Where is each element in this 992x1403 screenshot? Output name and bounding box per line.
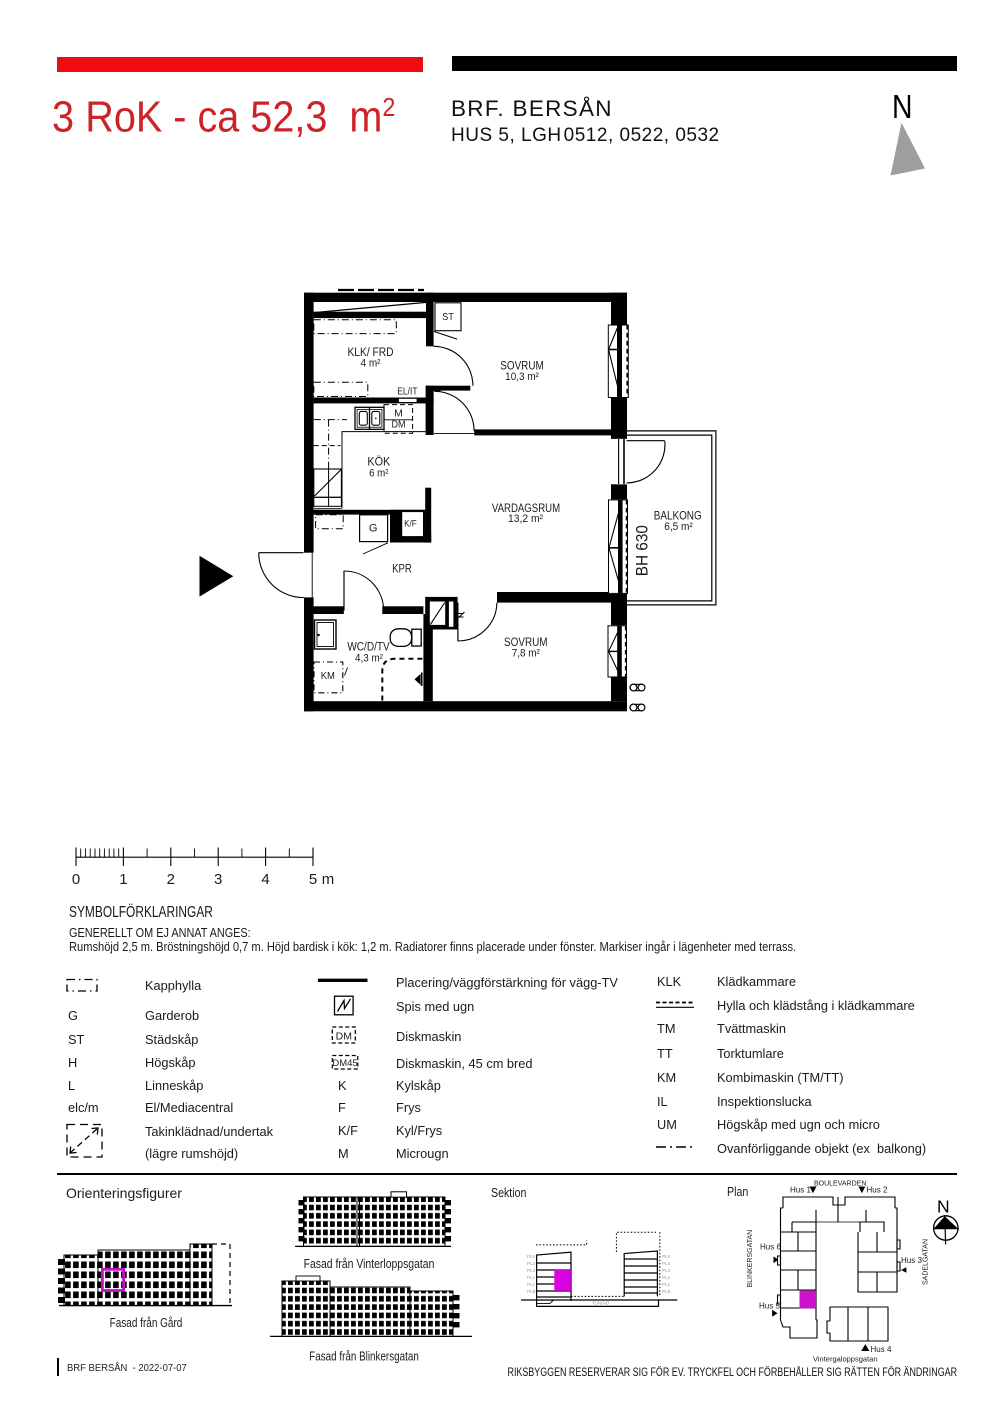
svg-text:4 m²: 4 m² xyxy=(360,357,380,370)
svg-text:DM: DM xyxy=(336,1031,352,1043)
svg-text:PL2: PL2 xyxy=(527,1275,536,1280)
svg-text:Hus 6: Hus 6 xyxy=(760,1243,781,1252)
svg-text:BLINKERSGATAN: BLINKERSGATAN xyxy=(747,1230,754,1288)
svg-text:1: 1 xyxy=(119,871,127,888)
svg-text:PL3: PL3 xyxy=(527,1268,536,1273)
svg-text:DM45: DM45 xyxy=(332,1058,357,1069)
svg-text:BH 630: BH 630 xyxy=(634,525,652,576)
svg-text:K/F: K/F xyxy=(404,518,417,529)
svg-text:m: m xyxy=(322,871,335,888)
svg-text:KPR: KPR xyxy=(392,563,412,576)
svg-text:7,8 m²: 7,8 m² xyxy=(512,647,540,660)
svg-text:Hus 4: Hus 4 xyxy=(871,1345,892,1354)
svg-text:PL1: PL1 xyxy=(662,1282,671,1287)
svg-text:PL2: PL2 xyxy=(662,1275,671,1280)
svg-text:KM: KM xyxy=(321,670,335,682)
svg-text:10,3 m²: 10,3 m² xyxy=(505,370,539,383)
svg-text:BOULEVARDEN: BOULEVARDEN xyxy=(814,1181,866,1188)
svg-text:4: 4 xyxy=(261,871,269,888)
svg-text:PL4: PL4 xyxy=(662,1261,671,1266)
svg-text:PLB: PLB xyxy=(527,1289,536,1294)
svg-text:N: N xyxy=(937,1197,950,1217)
svg-text:PL5: PL5 xyxy=(527,1254,536,1259)
svg-text:5: 5 xyxy=(309,871,317,888)
svg-text:Hus 1: Hus 1 xyxy=(790,1186,811,1195)
svg-text:Hus 3: Hus 3 xyxy=(901,1256,922,1265)
svg-text:PLB: PLB xyxy=(662,1289,671,1294)
svg-text:Fasad från Gård: Fasad från Gård xyxy=(110,1317,183,1330)
svg-text:PL3: PL3 xyxy=(662,1268,671,1273)
svg-text:PL1: PL1 xyxy=(527,1282,536,1287)
svg-text:DM: DM xyxy=(391,419,405,431)
svg-text:6 m²: 6 m² xyxy=(369,467,389,480)
svg-text:13,2 m²: 13,2 m² xyxy=(508,513,543,526)
svg-text:PL5: PL5 xyxy=(662,1254,671,1259)
svg-text:2: 2 xyxy=(167,871,175,888)
svg-text:6,5 m²: 6,5 m² xyxy=(664,520,693,533)
svg-text:4,3 m²: 4,3 m² xyxy=(355,652,383,665)
svg-text:EL/IT: EL/IT xyxy=(397,386,417,398)
svg-text:0: 0 xyxy=(72,871,80,888)
svg-text:Hus 5: Hus 5 xyxy=(759,1302,780,1311)
svg-text:M: M xyxy=(394,407,403,419)
svg-text:Fasad från Blinkersgatan: Fasad från Blinkersgatan xyxy=(309,1350,419,1363)
svg-text:ST: ST xyxy=(442,311,454,323)
svg-text:PL4: PL4 xyxy=(527,1261,536,1266)
svg-text:Hus 2: Hus 2 xyxy=(867,1186,888,1195)
svg-text:Fasad från Vinterloppsgatan: Fasad från Vinterloppsgatan xyxy=(304,1258,435,1271)
svg-text:TUNING: TUNING xyxy=(592,1301,610,1306)
svg-text:3: 3 xyxy=(214,871,222,888)
svg-text:SADELGATAN: SADELGATAN xyxy=(923,1239,930,1285)
svg-text:G: G xyxy=(369,523,378,535)
svg-text:Vintergaloppsgatan: Vintergaloppsgatan xyxy=(813,1355,878,1364)
